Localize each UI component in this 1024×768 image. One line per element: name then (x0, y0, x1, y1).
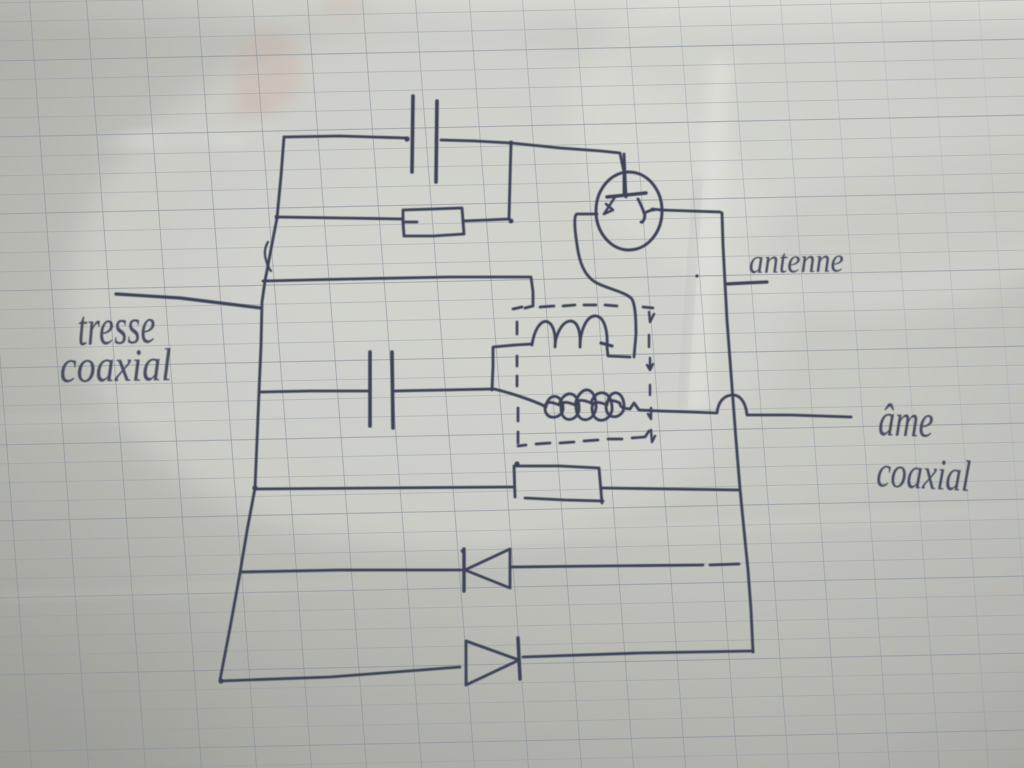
svg-text:antenne: antenne (748, 242, 844, 281)
svg-text:âme: âme (878, 394, 935, 447)
svg-text:coaxial: coaxial (875, 447, 971, 501)
svg-text:coaxial: coaxial (59, 339, 172, 392)
